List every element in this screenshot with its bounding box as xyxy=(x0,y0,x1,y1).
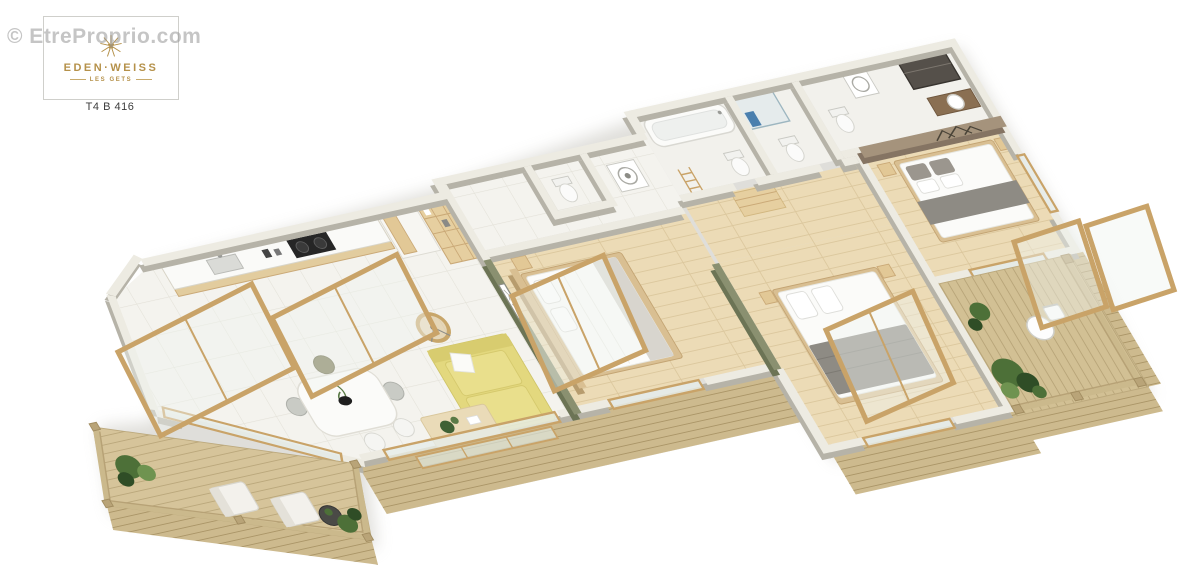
rule-left xyxy=(70,79,86,80)
unit-label: T4 B 416 xyxy=(43,101,177,113)
floorplan-render xyxy=(0,0,1200,577)
logo-title: EDEN·WEISS xyxy=(64,62,159,74)
logo-subtitle: LES GETS xyxy=(70,77,152,83)
floorplan-page: EDEN·WEISS LES GETS T4 B 416 © EtrePropr… xyxy=(0,0,1200,577)
watermark: © EtreProprio.com xyxy=(7,25,201,49)
rule-right xyxy=(136,79,152,80)
